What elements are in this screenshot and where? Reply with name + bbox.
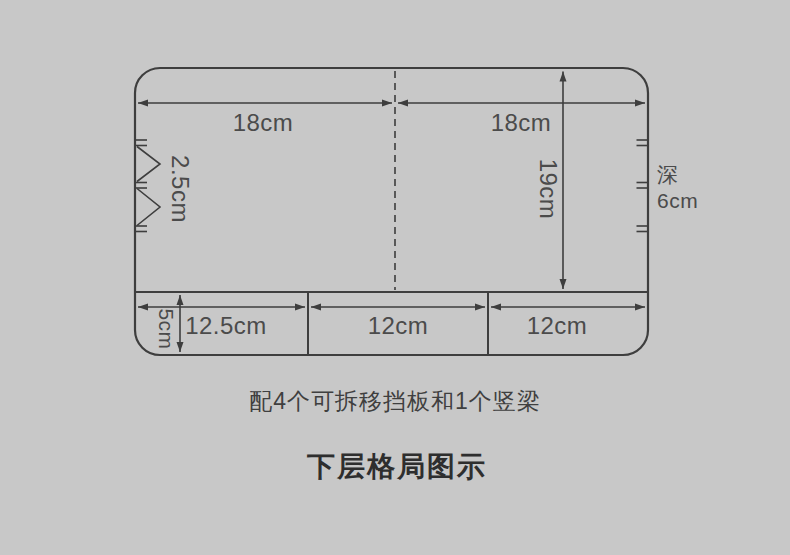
dim-label-slot-pitch: 2.5cm (167, 155, 194, 223)
diagram-title: 下层格局图示 (306, 451, 487, 482)
dim-label-bottom-row-height: 5cm (155, 308, 178, 349)
dim-label-bottom-cell-2: 12cm (368, 312, 429, 339)
dim-label-depth-value: 6cm (657, 189, 698, 212)
dim-label-bottom-cell-3: 12cm (527, 312, 588, 339)
right-edge-slot-ticks (637, 140, 649, 232)
dim-label-inner-depth: 19cm (535, 159, 562, 220)
dim-label-top-width-right: 18cm (491, 109, 552, 136)
slot-pitch-chevron-2 (137, 189, 160, 226)
slot-pitch-chevron-1 (137, 147, 160, 182)
diagram-canvas: 18cm 18cm 2.5cm 19cm 深 6cm 5cm 12.5cm 12… (0, 0, 790, 555)
product-dimension-diagram: 18cm 18cm 2.5cm 19cm 深 6cm 5cm 12.5cm 12… (0, 0, 790, 555)
dim-label-bottom-cell-1: 12.5cm (185, 312, 267, 339)
accessories-caption: 配4个可拆移挡板和1个竖梁 (249, 388, 541, 414)
dim-label-top-width-left: 18cm (233, 109, 294, 136)
dim-label-depth-prefix: 深 (657, 163, 679, 186)
